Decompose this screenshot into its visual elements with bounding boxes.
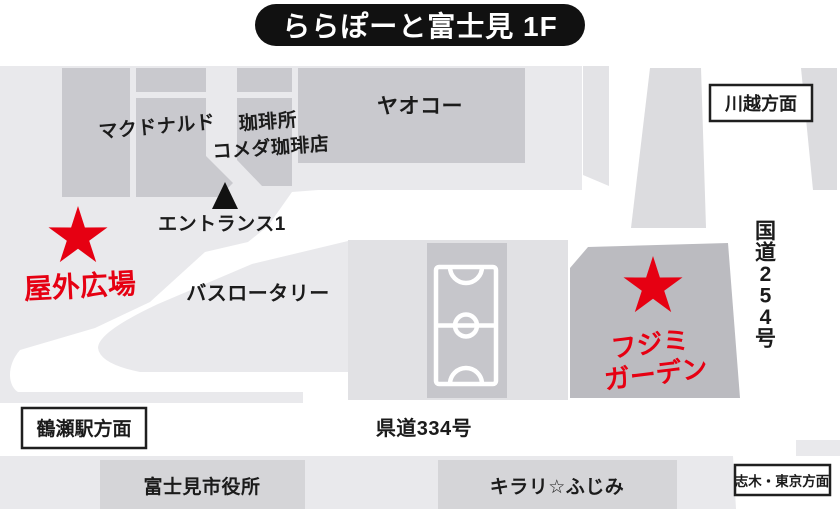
road-junction-corner bbox=[796, 440, 840, 456]
label-bus-rotary: バスロータリー bbox=[186, 282, 330, 305]
label-prefectural-road-334: 県道334号 bbox=[376, 416, 472, 440]
building-block-north-small bbox=[136, 68, 206, 92]
label-outdoor-plaza: 屋外広場 bbox=[23, 268, 136, 305]
label-entrance1: エントランス1 bbox=[158, 214, 286, 235]
direction-label-kawagoe: 川越方面 bbox=[724, 93, 797, 114]
building-block-north-small-2 bbox=[237, 68, 292, 92]
label-yaoko: ヤオコー bbox=[377, 95, 463, 118]
label-kirari-fujimi: キラリ☆ふじみ bbox=[490, 477, 625, 498]
direction-label-shiki-tokyo: 志木・東京方面 bbox=[735, 473, 830, 489]
label-coffee-place: 珈琲所 bbox=[238, 109, 298, 135]
lalaport-fujimi-map: マクドナルド 珈琲所 コメダ珈琲店 ヤオコー エントランス1 屋外広場 バスロー… bbox=[0, 0, 840, 509]
direction-label-tsuruse: 鶴瀬駅方面 bbox=[36, 417, 131, 440]
label-city-hall: 富士見市役所 bbox=[143, 475, 260, 498]
page-title: ららぽーと富士見 1F bbox=[282, 10, 557, 42]
roadside-strip-left bbox=[583, 66, 609, 186]
map-canvas: マクドナルド 珈琲所 コメダ珈琲店 ヤオコー エントランス1 屋外広場 バスロー… bbox=[0, 0, 840, 509]
